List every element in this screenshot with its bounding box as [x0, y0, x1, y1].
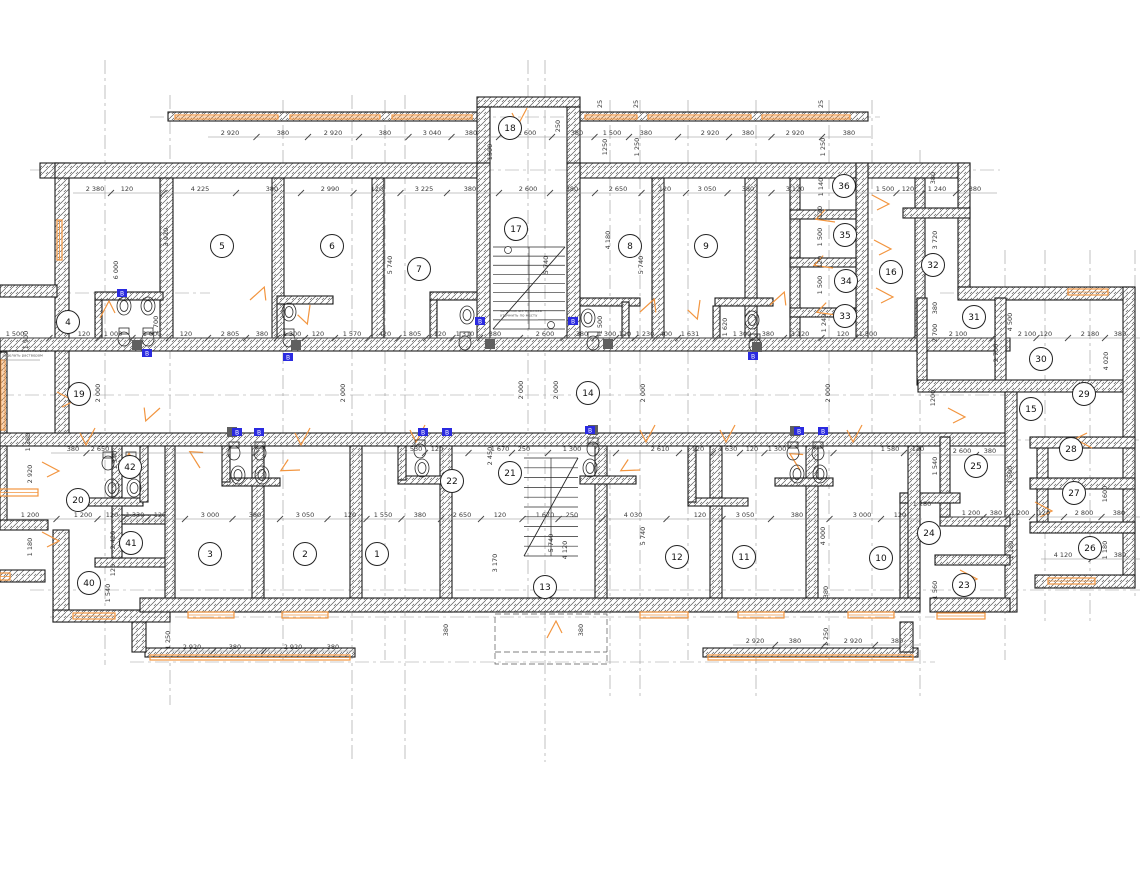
marker-letter: В [571, 319, 575, 326]
room-number-label: 24 [923, 529, 935, 539]
dimension-label: 1 500 [816, 276, 824, 295]
room-number-label: 20 [72, 496, 84, 506]
dimension-label: 1 280 [913, 500, 932, 508]
dimension-label: 120 [434, 330, 446, 338]
dimension-label: 120 [106, 511, 118, 519]
dimension-label: 2 000 [339, 384, 347, 403]
room-number-label: 27 [1068, 489, 1079, 499]
wall-segment [856, 163, 868, 345]
dimension-label: 120 [344, 511, 356, 519]
dimension-label: 1 500 [603, 129, 622, 137]
dimension-label: 1 240 [820, 314, 828, 333]
room-number-label: 15 [1025, 405, 1036, 415]
marker-letter: В [120, 291, 124, 298]
dimension-label: 1 500 [596, 316, 604, 335]
dimension-label: 1 250 [164, 631, 172, 650]
room-number-label: 3 [207, 550, 213, 560]
dimension-label: 2 920 [183, 643, 202, 651]
dimension-label: 1 300 [283, 330, 302, 338]
wall-segment [95, 300, 102, 338]
dimension-label: 2 920 [786, 129, 805, 137]
room-number-label: 6 [329, 242, 335, 252]
wall-segment [0, 446, 7, 522]
room-number-label: 5 [219, 242, 225, 252]
dimension-label: 380 [577, 624, 585, 636]
dimension-label: 1 300 [563, 445, 582, 453]
shaft-block [603, 339, 613, 349]
dimension-label: 380 [1114, 330, 1126, 338]
dimension-label: 4 500 [1006, 313, 1014, 332]
dimension-label: 3 040 [423, 129, 442, 137]
dimension-label: 2 600 [536, 330, 555, 338]
wall-segment [580, 163, 970, 178]
wall-segment [940, 517, 1010, 526]
shaft-block [752, 342, 762, 352]
dimension-label: 5 740 [542, 256, 550, 275]
wall-segment [85, 498, 143, 506]
wall-segment [903, 208, 970, 218]
wall-segment [95, 558, 170, 567]
marker-letter: В [588, 428, 592, 435]
dimension-label: 3 050 [698, 185, 717, 193]
dimension-label: 2 000 [639, 384, 647, 403]
dimension-label: 4 180 [604, 231, 612, 250]
dimension-label: 380 [891, 637, 903, 645]
room-number-label: 8 [627, 242, 633, 252]
wall-segment [140, 598, 920, 612]
dimension-label: 3 170 [491, 554, 499, 573]
wall-segment [940, 437, 950, 517]
dimension-label: 2 450 [486, 447, 494, 466]
dimension-label: 1 330 [126, 511, 145, 519]
dimension-label: 2 920 [746, 637, 765, 645]
dimension-label: 420 [379, 330, 391, 338]
dimension-label: 120 [837, 330, 849, 338]
wall-segment [53, 530, 69, 622]
room-number-label: 21 [504, 469, 515, 479]
dimension-label: 1 700 [152, 316, 160, 335]
dimension-label: 120 [746, 445, 758, 453]
wall-segment [688, 446, 696, 502]
dimension-label: 120 [180, 330, 192, 338]
dimension-label: 380 [1114, 551, 1126, 559]
room-number-label: 35 [839, 231, 850, 241]
dimension-label: 6 000 [112, 261, 120, 280]
room-number-label: 25 [970, 462, 981, 472]
dimension-label: 1 380 [24, 433, 32, 452]
wall-segment [930, 598, 1010, 612]
dimension-label: 120 [371, 185, 383, 193]
room-number-label: 1 [374, 550, 380, 560]
marker-letter: В [421, 430, 425, 437]
wall-segment [580, 476, 636, 484]
dimension-label: 120 [109, 564, 117, 576]
dimension-label: 380 [256, 330, 268, 338]
wall-segment [477, 97, 580, 107]
dimension-label: 120 [694, 511, 706, 519]
wall-segment [165, 446, 175, 610]
dimension-label: 25 [632, 100, 640, 108]
dimension-label: 2 600 [519, 185, 538, 193]
dimension-label: 4 020 [1102, 352, 1110, 371]
dimension-label: 4 000 [819, 527, 827, 546]
wall-segment [775, 478, 833, 486]
wall-segment [917, 298, 927, 385]
dimension-label: 5 740 [547, 534, 555, 553]
dimension-label: 1 200 [1011, 509, 1030, 517]
dimension-label: 3 120 [786, 185, 805, 193]
dimension-label: 1 180 [1101, 541, 1109, 560]
dimension-label: 25 [596, 100, 604, 108]
dimension-label: 120 [816, 256, 824, 268]
wall-segment [132, 622, 146, 652]
wall-segment [713, 306, 720, 338]
dimension-label: 1 180 [1007, 541, 1015, 560]
dimension-label: 1 300 [768, 445, 787, 453]
wall-segment [55, 163, 477, 178]
marker-letter: В [821, 429, 825, 436]
marker-letter: В [751, 354, 755, 361]
dimension-label: 120 [121, 185, 133, 193]
wall-segment [688, 498, 748, 506]
dimension-label: 120 [154, 511, 166, 519]
room-number-label: 33 [839, 312, 850, 322]
room-number-label: 18 [504, 124, 516, 134]
dimension-label: 1 200 [962, 509, 981, 517]
dimension-label: 5 740 [639, 527, 647, 546]
dimension-label: 380 [640, 129, 652, 137]
marker-letter: В [478, 319, 482, 326]
wall-segment [350, 446, 362, 598]
dimension-label: 3 720 [931, 231, 939, 250]
dimension-label: 380 [566, 185, 578, 193]
dimension-label: 120 [692, 445, 704, 453]
wall-segment [1005, 392, 1017, 612]
dimension-label: 380 [742, 185, 754, 193]
dimension-label: 120 [912, 445, 924, 453]
wall-segment [430, 292, 477, 300]
dimension-label: 1 530 [404, 445, 423, 453]
dimension-label: 2 380 [86, 185, 105, 193]
dimension-label: 1 540 [111, 451, 119, 470]
dimension-label: 5 740 [637, 256, 645, 275]
dimension-label: 1 900 [22, 331, 30, 350]
dimension-label: 2 100 [949, 330, 968, 338]
dimension-label: 2 700 [992, 344, 1000, 363]
wall-segment [222, 446, 230, 482]
dimension-label: 250 [518, 445, 530, 453]
dimension-label: 120 [1038, 509, 1050, 517]
dimension-label: 4 225 [191, 185, 210, 193]
dimension-label: 2 650 [91, 445, 110, 453]
dimension-label: 1 140 [817, 178, 825, 197]
wall-segment [1035, 575, 1135, 588]
marker-letter: В [797, 429, 801, 436]
dimension-label: 2 180 [1081, 330, 1100, 338]
dimension-label: 3 000 [853, 511, 872, 519]
room-number-label: 13 [539, 583, 550, 593]
dimension-label: 1 620 [721, 318, 729, 337]
dimension-label: 1 631 [681, 330, 700, 338]
dimension-label: 1 500 [859, 330, 878, 338]
dimension-label: 1 300 [733, 330, 752, 338]
marker-letter: В [286, 355, 290, 362]
room-number-label: 23 [958, 581, 969, 591]
dimension-label: 380 [789, 637, 801, 645]
dimension-label: 2 800 [1075, 509, 1094, 517]
dimension-label: 4 120 [561, 541, 569, 560]
dimension-label: 1 540 [931, 457, 939, 476]
dimension-label: 2 920 [284, 643, 303, 651]
room-number-label: 40 [83, 579, 95, 589]
wall-segment [652, 178, 664, 338]
wall-segment [160, 178, 173, 345]
dimension-label: 5 740 [386, 256, 394, 275]
dimension-label: 1600 [1101, 486, 1109, 503]
dimension-label: 120 [78, 330, 90, 338]
dimension-label: 3 050 [736, 511, 755, 519]
dimension-label: 380 [929, 172, 937, 184]
wall-segment [252, 446, 264, 598]
wall-segment [0, 520, 48, 530]
dimension-label: 2 000 [824, 384, 832, 403]
dimension-label: 1 200 [21, 511, 40, 519]
dimension-label: 1 240 [928, 185, 947, 193]
room-number-label: 30 [1035, 355, 1047, 365]
dimension-label: 380 [277, 129, 289, 137]
shaft-block [132, 340, 142, 350]
dimension-label: 1 230 [636, 330, 655, 338]
wall-segment [372, 178, 384, 338]
dimension-label: 1 560 [931, 581, 939, 600]
wall-segment [715, 298, 773, 306]
dimension-label: 1 500 [876, 185, 895, 193]
dimension-label: 120 [902, 185, 914, 193]
room-number-label: 16 [885, 268, 897, 278]
dimension-label: 380 [464, 185, 476, 193]
marker-letter: В [235, 430, 239, 437]
room-number-label: 19 [73, 390, 85, 400]
dimension-label: 2 920 [221, 129, 240, 137]
dimension-label: 1 540 [104, 584, 112, 603]
room-number-label: 26 [1084, 544, 1096, 554]
dimension-label: 2 650 [453, 511, 472, 519]
room-number-label: 7 [416, 265, 422, 275]
dimension-label: 4 500 [1006, 466, 1014, 485]
dimension-label: 4 120 [1054, 551, 1073, 559]
dimension-label: 2 000 [94, 384, 102, 403]
dimension-label: 380 [249, 511, 261, 519]
note-line: заделать раствором [2, 353, 43, 358]
room-number-label: 28 [1065, 445, 1077, 455]
dimension-label: 380 [1113, 509, 1125, 517]
room-number-label: 29 [1078, 390, 1090, 400]
dimension-label: 2 610 [651, 445, 670, 453]
marker-letter: В [257, 430, 261, 437]
wall-segment [995, 298, 1006, 385]
dimension-label: 400 [660, 330, 672, 338]
dimension-label: 380 [442, 624, 450, 636]
marker-letter: В [145, 351, 149, 358]
dimension-label: 120 [894, 511, 906, 519]
dimension-label: 2 000 [552, 381, 560, 400]
stair-post [548, 322, 555, 329]
dimension-label: 1 250 [822, 628, 830, 647]
dimension-label: 2 000 [517, 381, 525, 400]
wall-segment [140, 446, 148, 502]
room-number-label: 4 [65, 318, 71, 328]
dimension-label: 380 [984, 447, 996, 455]
wall-segment [580, 298, 640, 306]
dimension-label: 380 [229, 643, 241, 651]
dimension-label: 1 500 [816, 228, 824, 247]
room-number-label: 10 [875, 554, 887, 564]
dimension-label: 4 030 [624, 511, 643, 519]
dimension-label: 1 250 [819, 138, 827, 157]
dimension-label: 3 920 [162, 228, 170, 247]
dimension-label: 1 250 [633, 138, 641, 157]
wall-segment [703, 648, 918, 657]
dimension-label: 250 [554, 120, 562, 132]
wall-segment [908, 446, 920, 598]
dimension-label: 120 [619, 330, 631, 338]
dimension-label: 1 180 [26, 538, 34, 557]
dimension-label: 380 [327, 643, 339, 651]
dimension-label: 380 [571, 129, 583, 137]
dimension-label: 1 580 [881, 445, 900, 453]
dimension-label: 120 [312, 330, 324, 338]
dimension-label: 380 [822, 586, 830, 598]
dimension-label: 2 805 [221, 330, 240, 338]
room-number-label: 32 [927, 261, 938, 271]
dimension-label: 380 [969, 185, 981, 193]
dimension-label: 380 [576, 330, 588, 338]
dimension-label: 1 200 [74, 511, 93, 519]
room-number-label: 17 [510, 225, 521, 235]
stair-post [505, 247, 512, 254]
room-number-label: 42 [124, 463, 135, 473]
dimension-label: 1500 [486, 144, 494, 161]
note-line: уточнить по месту [500, 313, 538, 318]
room-number-label: 14 [582, 389, 594, 399]
dimension-label: 2 420 [109, 531, 117, 550]
room-number-label: 11 [738, 553, 749, 563]
dimension-label: 380 [990, 509, 1002, 517]
dimension-label: 1 310 [456, 330, 475, 338]
dimension-label: 380 [266, 185, 278, 193]
wall-segment [710, 446, 722, 598]
dimension-label: 120 [816, 206, 824, 218]
dimension-label: 3 050 [296, 511, 315, 519]
dimension-label: 2 700 [931, 324, 939, 343]
dimension-label: 2 920 [26, 465, 34, 484]
dimension-label: 380 [843, 129, 855, 137]
dimension-label: 380 [379, 129, 391, 137]
wall-segment [277, 296, 333, 304]
dimension-label: 120 [431, 445, 443, 453]
dimension-label: 120 [1040, 330, 1052, 338]
room-number-label: 31 [968, 313, 979, 323]
room-number-label: 2 [302, 550, 308, 560]
wall-segment [145, 648, 355, 657]
wall-segment [55, 163, 69, 446]
dimension-label: 1 570 [343, 330, 362, 338]
shaft-block [291, 340, 301, 350]
floor-plan-drawing: ВВВВВВВВВВВВВ2 9203802 9203803 0403802 6… [0, 0, 1140, 870]
wall-segment [222, 478, 280, 486]
dimension-label: 3 000 [201, 511, 220, 519]
floor-plan-canvas: ВВВВВВВВВВВВВ2 9203802 9203803 0403802 6… [0, 0, 1140, 870]
dimension-label: 380 [465, 129, 477, 137]
wall-segment [168, 112, 477, 121]
dimension-label: 2 100 [1018, 330, 1037, 338]
dimension-label: 380 [931, 302, 939, 314]
dimension-label: 2 920 [324, 129, 343, 137]
dimension-label: 1250 [601, 139, 609, 156]
dimension-label: 1 805 [403, 330, 422, 338]
room-number-label: 34 [840, 277, 852, 287]
dimension-label: 25 [817, 100, 825, 108]
dimension-label: 120 [494, 511, 506, 519]
wall-segment [958, 163, 970, 298]
room-number-label: 36 [838, 182, 850, 192]
room-number-label: 22 [446, 477, 457, 487]
dimension-label: 380 [762, 330, 774, 338]
wall-segment [935, 555, 1010, 565]
dimension-label: 120 [659, 185, 671, 193]
wall-segment [95, 292, 163, 300]
room-number-label: 9 [703, 242, 709, 252]
dimension-label: 2 990 [321, 185, 340, 193]
dimension-label: 3 225 [415, 185, 434, 193]
dimension-label: 3 120 [791, 330, 810, 338]
shaft-block [485, 339, 495, 349]
room-number-label: 41 [125, 539, 136, 549]
dimension-label: 380 [742, 129, 754, 137]
dimension-label: 1200 [929, 390, 937, 407]
dimension-label: 250 [566, 511, 578, 519]
dimension-label: 1 630 [719, 445, 738, 453]
wall-segment [806, 446, 818, 598]
dimension-label: 380 [67, 445, 79, 453]
dimension-label: 1 550 [374, 511, 393, 519]
dimension-label: 380 [489, 330, 501, 338]
wall-segment [580, 112, 868, 121]
wall-segment [1030, 522, 1135, 533]
wall-segment [918, 380, 1135, 392]
dimension-label: 2 600 [953, 447, 972, 455]
dimension-label: 2 920 [701, 129, 720, 137]
dimension-label: 380 [414, 511, 426, 519]
dimension-label: 2 650 [609, 185, 628, 193]
dimension-label: 1 000 [104, 330, 123, 338]
dimension-label: 2 920 [844, 637, 863, 645]
dimension-label: 380 [791, 511, 803, 519]
wall-segment [0, 285, 57, 297]
dimension-label: 1 670 [536, 511, 555, 519]
room-number-label: 12 [671, 553, 682, 563]
marker-letter: В [445, 430, 449, 437]
